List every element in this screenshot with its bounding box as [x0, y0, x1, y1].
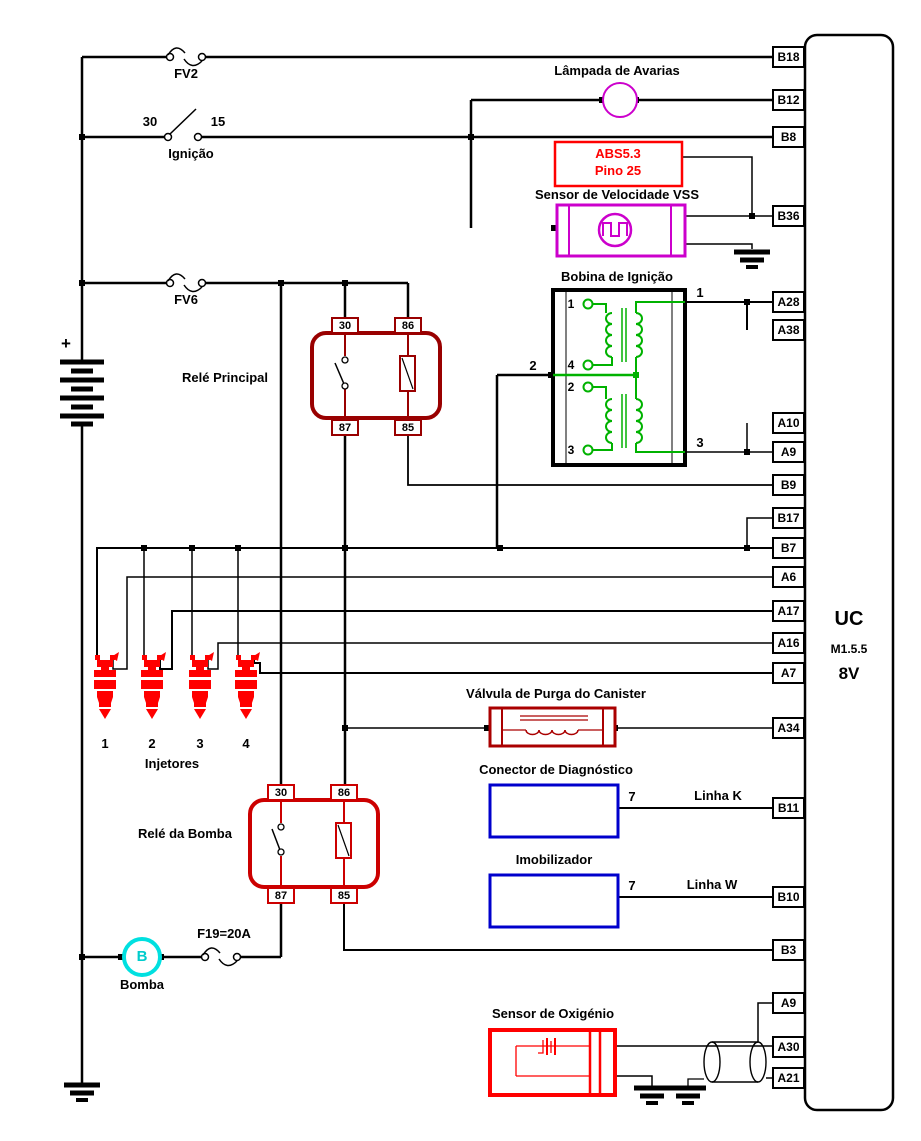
fuse-fv6-symbol: [167, 274, 206, 292]
immobilizer-label: Imobilizador: [516, 852, 593, 867]
pump-relay-label: Relé da Bomba: [138, 826, 232, 841]
canister-valve-label: Válvula de Purga do Canister: [466, 686, 646, 701]
injector-number-4: 4: [242, 736, 249, 751]
ecu-pin-a9-2: A9: [772, 992, 805, 1014]
main-relay-label: Relé Principal: [182, 370, 268, 385]
fuse-f19-label: F19=20A: [197, 926, 251, 941]
ecu-pin-a28: A28: [772, 291, 805, 313]
ecu-pin-b3: B3: [772, 939, 805, 961]
immobilizer-box: [490, 875, 618, 927]
ecu-pin-b7: B7: [772, 537, 805, 559]
oxygen-sensor-symbol: [490, 1030, 615, 1095]
main-relay-terminal-85: 85: [394, 419, 422, 436]
ecu-pin-b11: B11: [772, 797, 805, 819]
ecu-model: M1.5.5: [831, 642, 868, 656]
injector-number-3: 3: [196, 736, 203, 751]
pump-relay-terminal-86: 86: [330, 784, 358, 801]
ignition-terminal-15: 15: [211, 114, 225, 129]
battery-plus-label: +: [61, 334, 71, 354]
pump-relay-terminal-85: 85: [330, 887, 358, 904]
ecu-pin-a17: A17: [772, 600, 805, 622]
injectors-label: Injetores: [145, 756, 199, 771]
pump-relay-terminal-30: 30: [267, 784, 295, 801]
battery-symbol: [60, 362, 104, 424]
pump-letter: B: [137, 948, 148, 965]
coil-wire-1: 1: [696, 285, 703, 300]
ecu-pin-b8: B8: [772, 126, 805, 148]
coil-terminal-4: 4: [568, 358, 575, 372]
ecu-name: UC: [835, 608, 864, 631]
ecu-pin-b17: B17: [772, 507, 805, 529]
pump-relay-terminal-87: 87: [267, 887, 295, 904]
ignition-coil-label: Bobina de Ignição: [561, 269, 673, 284]
oxygen-sensor-label: Sensor de Oxigénio: [492, 1006, 614, 1021]
shielded-cable-symbol: [704, 1042, 766, 1082]
canister-valve-symbol: [490, 708, 615, 746]
ecu-pin-a16: A16: [772, 632, 805, 654]
wiring-diagram: FV2 30 15 Ignição Lâmpada de Avarias ABS…: [0, 0, 921, 1141]
ecu-pin-b10: B10: [772, 886, 805, 908]
main-relay-symbol: [312, 333, 440, 418]
ecu-pin-a34: A34: [772, 717, 805, 739]
ecu-pin-a10: A10: [772, 412, 805, 434]
ecu-pin-a30: A30: [772, 1036, 805, 1058]
linha-w-label: Linha W: [687, 877, 738, 892]
coil-wire-2: 2: [529, 358, 536, 373]
ecu-pin-a7: A7: [772, 662, 805, 684]
ecu-pin-b12: B12: [772, 89, 805, 111]
coil-wire-3: 3: [696, 435, 703, 450]
abs-line2: Pino 25: [595, 163, 641, 178]
fuse-fv2-label: FV2: [174, 66, 198, 81]
ignition-coil-symbol: [553, 290, 685, 465]
vss-sensor-symbol: [557, 205, 685, 256]
ecu-version: 8V: [839, 664, 860, 684]
ignition-label: Ignição: [168, 146, 214, 161]
ecu-body: [805, 35, 893, 1110]
diagnostic-pin-7: 7: [628, 789, 635, 804]
ignition-terminal-30: 30: [143, 114, 157, 129]
warning-lamp-label: Lâmpada de Avarias: [554, 63, 679, 78]
main-relay-terminal-30: 30: [331, 317, 359, 334]
pump-relay-symbol: [250, 800, 378, 887]
ecu-pin-b36: B36: [772, 205, 805, 227]
ecu-pin-a9: A9: [772, 441, 805, 463]
fuse-fv2-symbol: [167, 48, 206, 66]
ecu-pin-b18: B18: [772, 46, 805, 68]
main-relay-terminal-87: 87: [331, 419, 359, 436]
immobilizer-pin-7: 7: [628, 878, 635, 893]
pump-label: Bomba: [120, 977, 164, 992]
diagnostic-connector-label: Conector de Diagnóstico: [479, 762, 633, 777]
ecu-pin-b9: B9: [772, 474, 805, 496]
injector-symbols: [94, 652, 260, 719]
ecu-pin-a6: A6: [772, 566, 805, 588]
ecu-pin-a21: A21: [772, 1067, 805, 1089]
fuse-fv6-label: FV6: [174, 292, 198, 307]
abs-line1: ABS5.3: [595, 146, 641, 161]
linha-k-label: Linha K: [694, 788, 742, 803]
injector-number-1: 1: [101, 736, 108, 751]
coil-terminal-2: 2: [568, 380, 575, 394]
vss-label: Sensor de Velocidade VSS: [535, 187, 699, 202]
diagnostic-connector-box: [490, 785, 618, 837]
ignition-switch-symbol: [165, 109, 202, 141]
main-relay-terminal-86: 86: [394, 317, 422, 334]
fuse-f19-symbol: [202, 948, 241, 966]
warning-lamp-symbol: [603, 83, 637, 117]
coil-terminal-1: 1: [568, 297, 575, 311]
ecu-pin-a38: A38: [772, 319, 805, 341]
injector-number-2: 2: [148, 736, 155, 751]
coil-terminal-3: 3: [568, 443, 575, 457]
